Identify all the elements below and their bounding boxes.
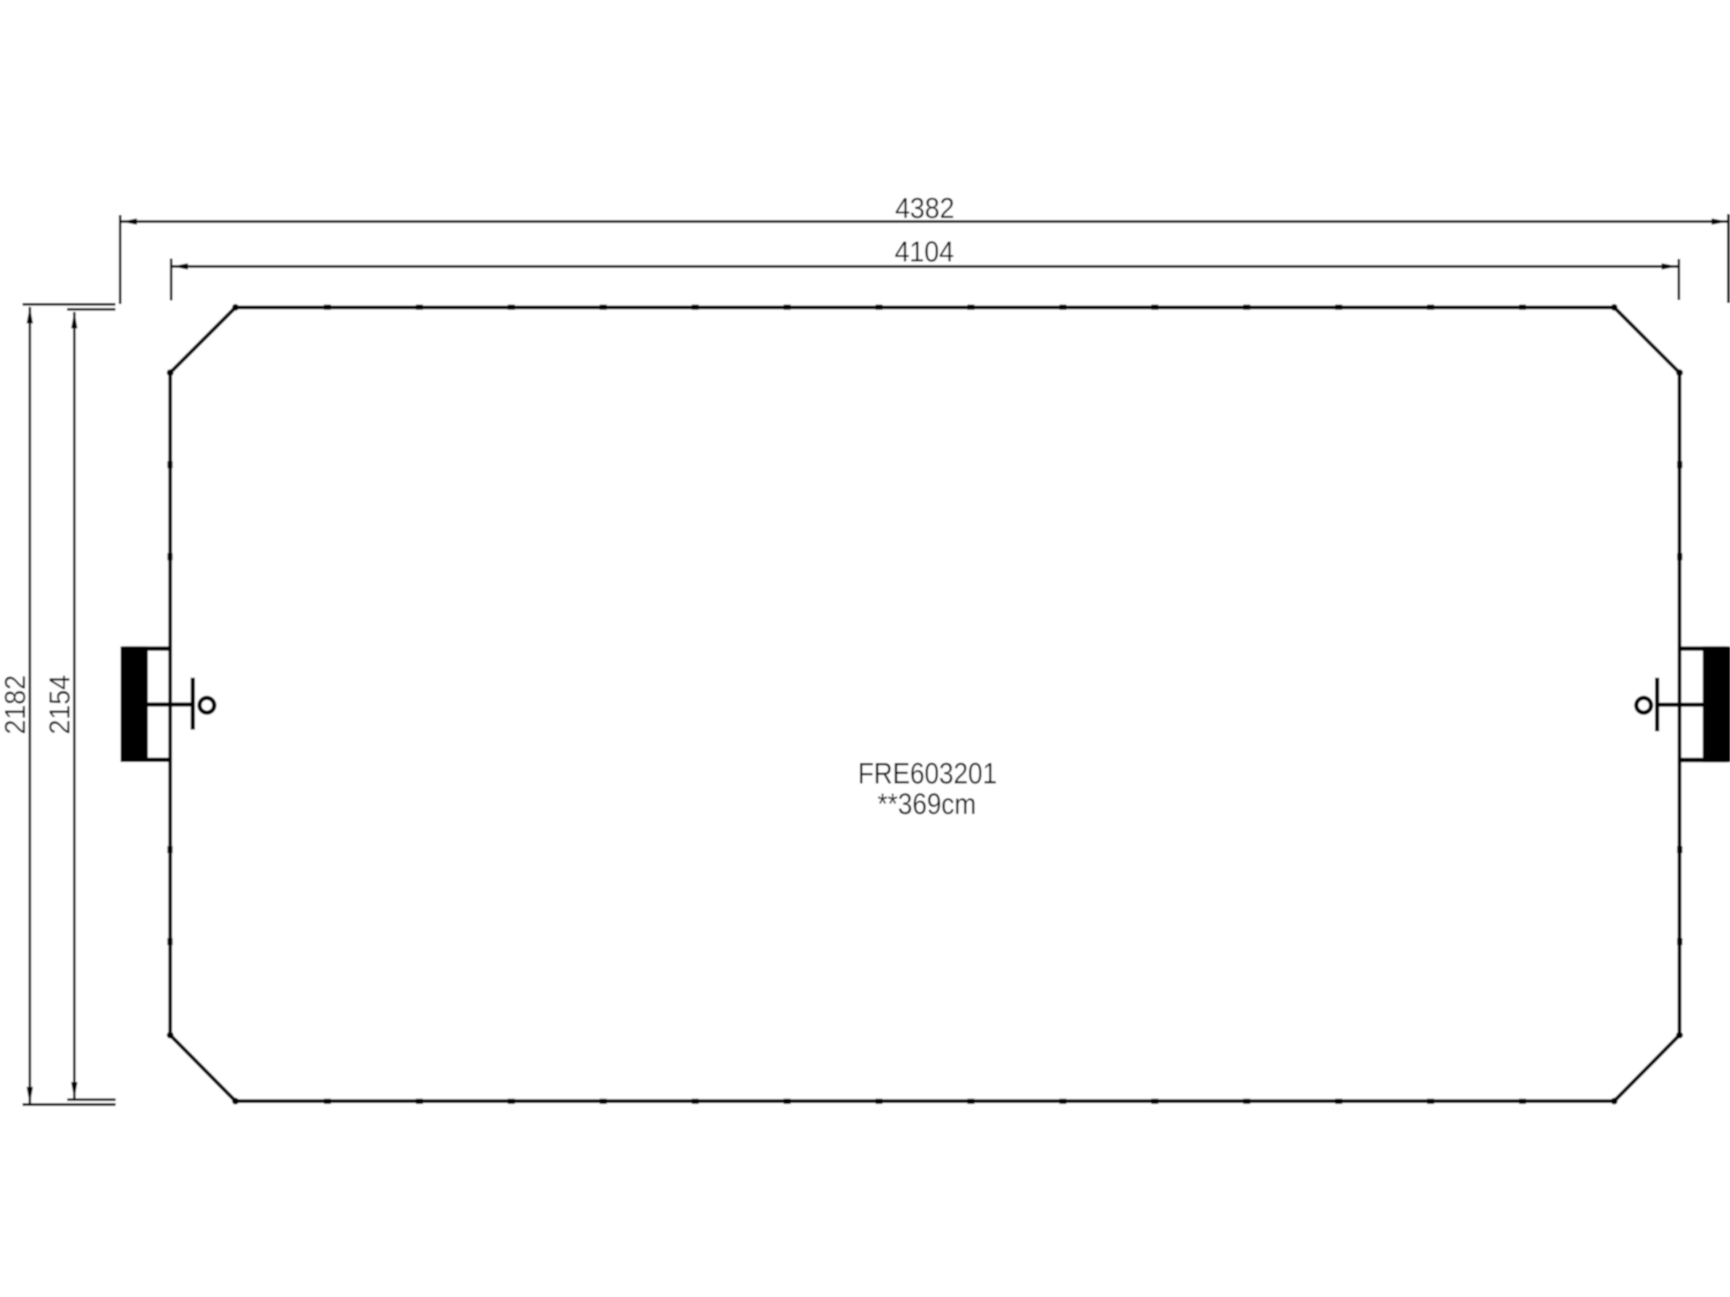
svg-text:4382: 4382 (895, 192, 954, 224)
svg-text:2182: 2182 (0, 675, 31, 734)
svg-text:FRE603201: FRE603201 (858, 757, 997, 790)
svg-text:2154: 2154 (44, 675, 76, 734)
svg-text:**369cm: **369cm (878, 787, 977, 820)
svg-text:4104: 4104 (895, 236, 954, 268)
